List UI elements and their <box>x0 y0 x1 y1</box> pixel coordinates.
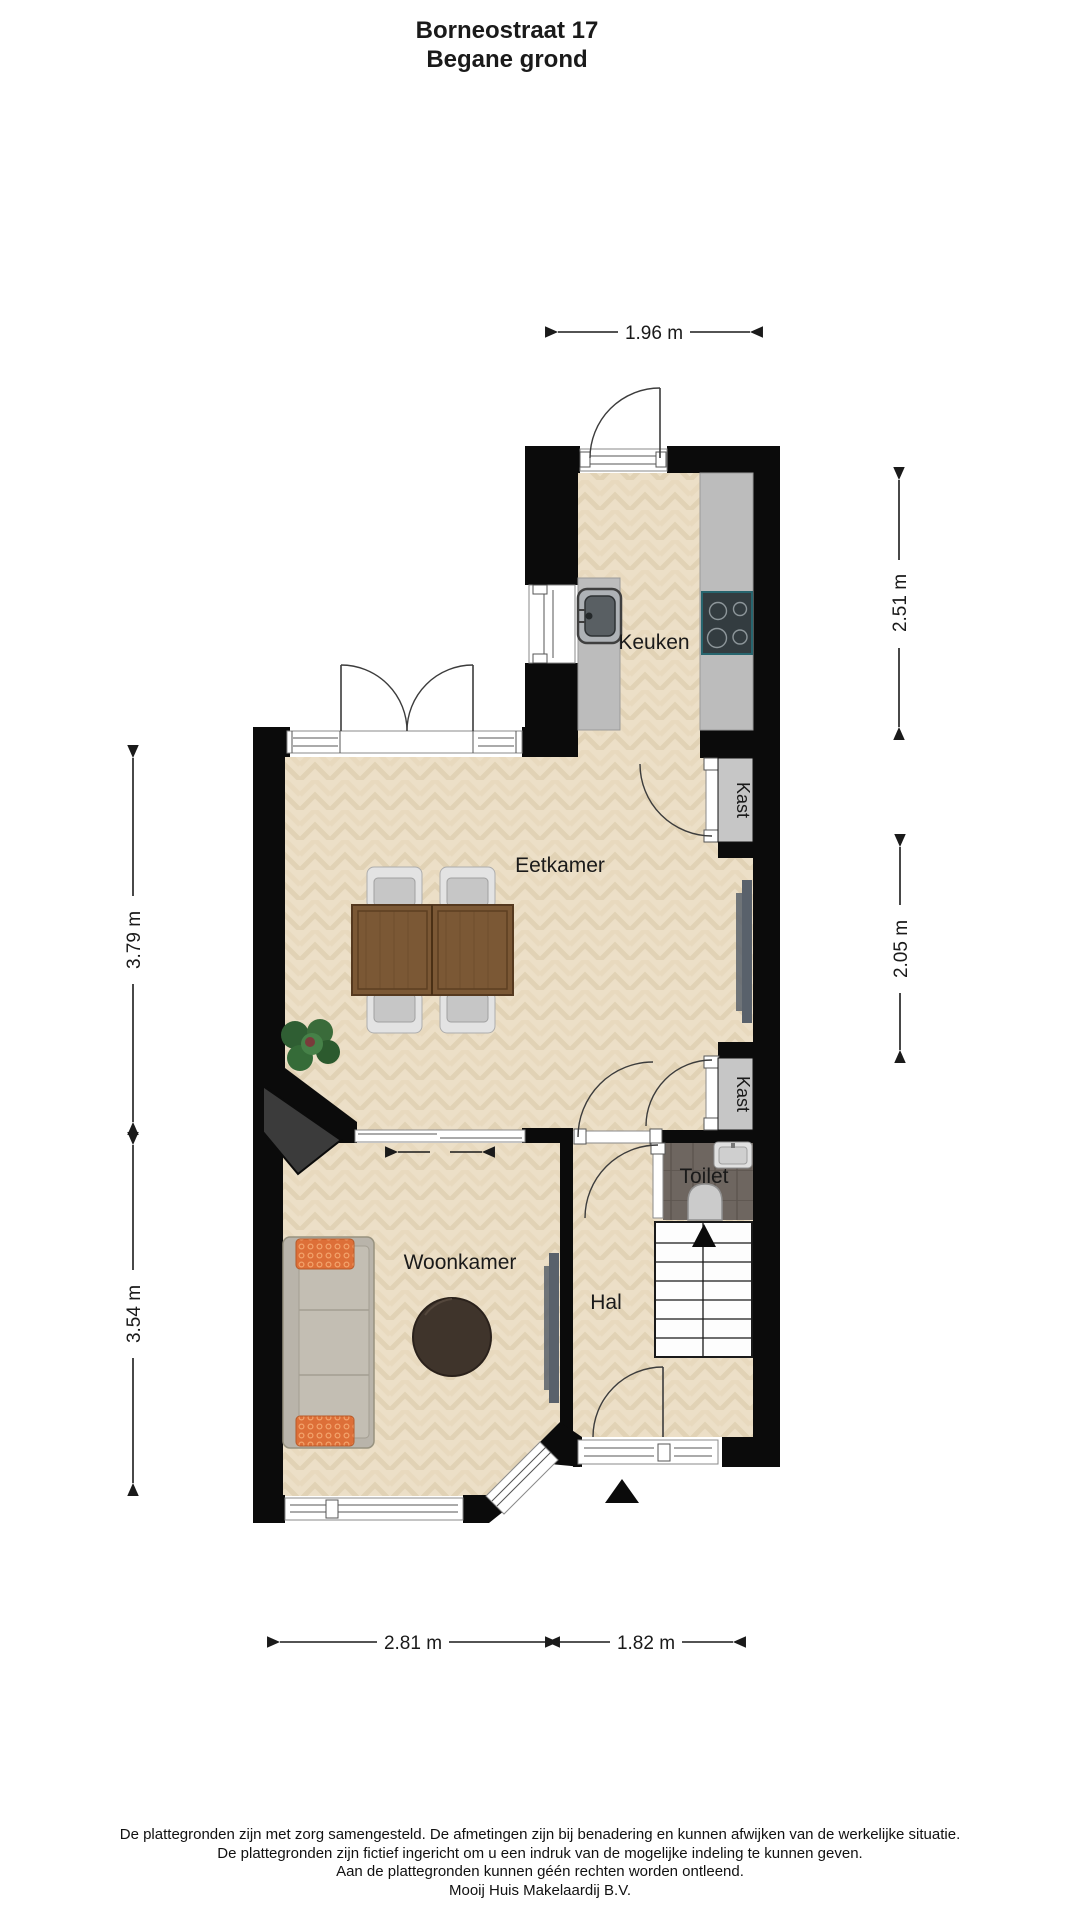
eetkamer-radiator <box>742 880 752 1023</box>
toilet-door <box>653 1145 663 1218</box>
label-kast-onder: Kast <box>733 1076 753 1112</box>
french-door-right-arc <box>407 665 473 731</box>
wall-eetkamer-left <box>253 727 285 1075</box>
label-kast-boven: Kast <box>733 782 753 818</box>
stairs <box>655 1222 752 1357</box>
woonkamer-window <box>285 1498 463 1520</box>
woonkamer-radiator <box>549 1253 559 1403</box>
wall-kitchen-bottom-right <box>700 728 780 758</box>
frontdoor-band <box>578 1440 718 1464</box>
floorplan-drawing: Keuken Eetkamer Woonkamer Hal Toilet Kas… <box>0 0 1080 1920</box>
kitchen-backdoor-band <box>580 449 667 471</box>
wall-woonkamer-bottom-left <box>253 1495 285 1523</box>
plant <box>281 1019 340 1071</box>
wall-woonkamer-hal <box>560 1128 573 1443</box>
kitchen-sink <box>578 589 621 643</box>
coffee-table <box>413 1298 491 1376</box>
label-toilet: Toilet <box>679 1165 728 1188</box>
dim-bottom-left: 2.81 m <box>384 1633 442 1654</box>
wall-eetkamer-top-right-corner <box>522 727 578 757</box>
dining-chair <box>440 991 495 1033</box>
wall-house-right <box>753 446 780 1467</box>
french-door-left-arc <box>341 665 407 731</box>
sofa <box>283 1237 374 1448</box>
dim-right-lower: 2.05 m <box>891 920 912 978</box>
label-keuken: Keuken <box>618 631 689 654</box>
dim-top: 1.96 m <box>625 323 683 344</box>
kast1-door <box>706 760 718 840</box>
disclaimer-line3: Aan de plattegronden kunnen géén rechten… <box>0 1863 1080 1882</box>
disclaimer-line4: Mooij Huis Makelaardij B.V. <box>0 1882 1080 1901</box>
sliding-doors <box>355 1130 525 1142</box>
dining-table <box>352 905 513 995</box>
label-hal: Hal <box>590 1291 622 1314</box>
cooktop <box>702 592 752 654</box>
label-eetkamer: Eetkamer <box>515 854 605 877</box>
dining-chair <box>367 867 422 909</box>
disclaimer-line1: De plattegronden zijn met zorg samengest… <box>0 1826 1080 1845</box>
wall-kitchen-left-upper <box>525 446 578 585</box>
entrance-arrow <box>605 1479 639 1503</box>
kitchen-backdoor-arc <box>590 388 660 458</box>
disclaimer-line2: De plattegronden zijn fictief ingericht … <box>0 1845 1080 1864</box>
eetkamer-window-band <box>287 731 522 753</box>
label-woonkamer: Woonkamer <box>404 1251 517 1274</box>
wall-below-kast1 <box>718 840 753 858</box>
sofa-pillow <box>296 1239 354 1269</box>
dim-left-upper: 3.79 m <box>124 911 145 969</box>
dining-chair <box>367 991 422 1033</box>
dim-left-lower: 3.54 m <box>124 1285 145 1343</box>
wall-above-kast2 <box>718 1042 753 1060</box>
eetkamer-hal-door <box>578 1131 653 1143</box>
sofa-pillow <box>296 1416 354 1446</box>
kitchen-window <box>529 585 575 663</box>
wall-eetkamer-top-left-corner <box>253 727 290 757</box>
wall-hal-bottom-right <box>722 1437 780 1467</box>
toilet-bowl <box>688 1184 722 1220</box>
dim-bottom-right: 1.82 m <box>617 1633 675 1654</box>
dining-chair <box>440 867 495 909</box>
dim-right-upper: 2.51 m <box>890 574 911 632</box>
eetkamer-radiator-fin <box>736 893 742 1011</box>
disclaimer: De plattegronden zijn met zorg samengest… <box>0 1826 1080 1900</box>
woonkamer-radiator-fin <box>544 1266 549 1390</box>
wall-hal-top-right <box>653 1130 753 1143</box>
floorplan-page: Borneostraat 17 Begane grond <box>0 0 1080 1920</box>
